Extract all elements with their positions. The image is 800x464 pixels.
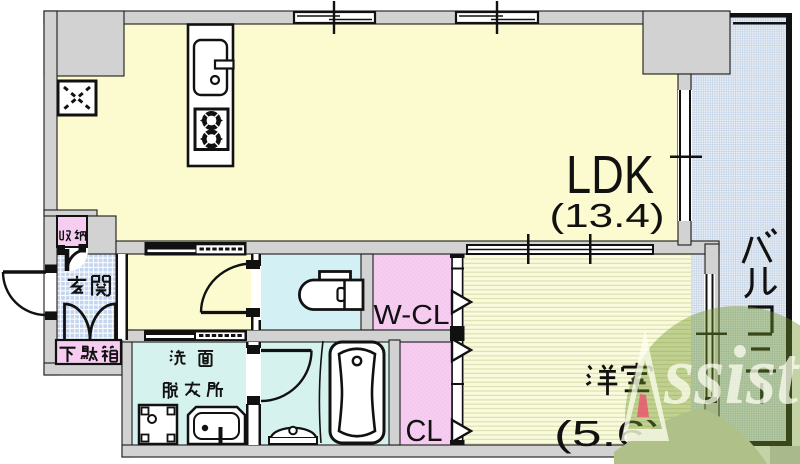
svg-text:CL: CL [406, 413, 443, 448]
svg-text:(13.4): (13.4) [550, 197, 665, 234]
svg-text:W-CL: W-CL [374, 299, 450, 330]
svg-text:ssist: ssist [663, 329, 800, 422]
svg-text:LDK: LDK [566, 145, 654, 205]
